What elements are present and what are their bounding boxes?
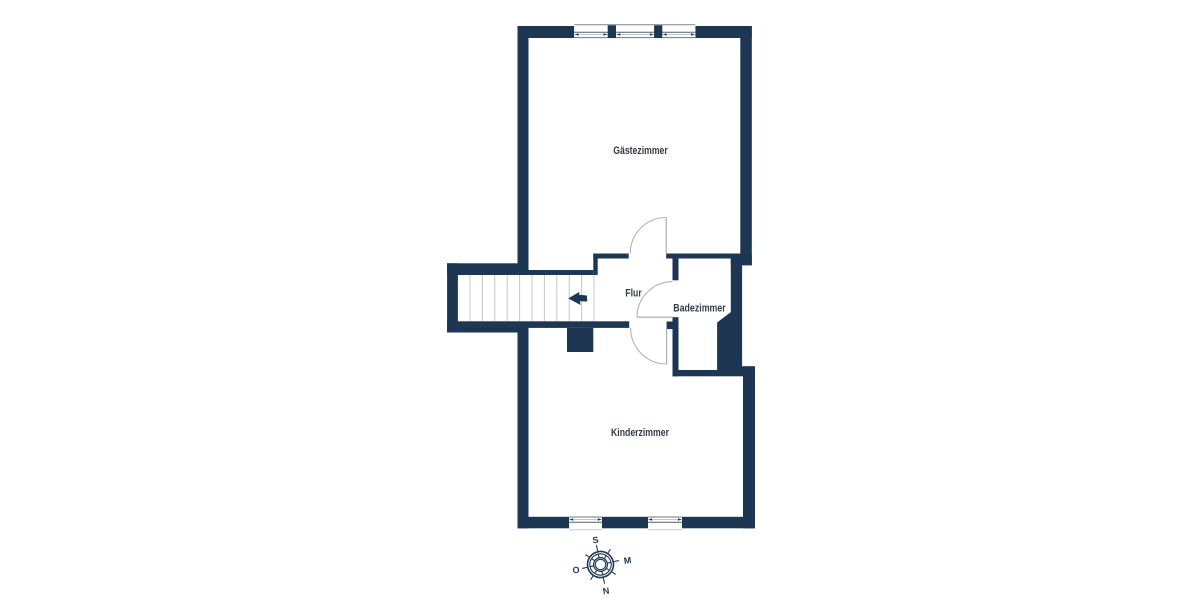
svg-text:Flur: Flur <box>625 287 642 299</box>
svg-text:M: M <box>623 555 632 566</box>
svg-text:Gästezimmer: Gästezimmer <box>613 145 668 157</box>
svg-text:O: O <box>572 565 580 576</box>
svg-text:Badezimmer: Badezimmer <box>673 303 726 315</box>
svg-text:N: N <box>602 586 610 597</box>
svg-text:Kinderzimmer: Kinderzimmer <box>611 427 670 439</box>
